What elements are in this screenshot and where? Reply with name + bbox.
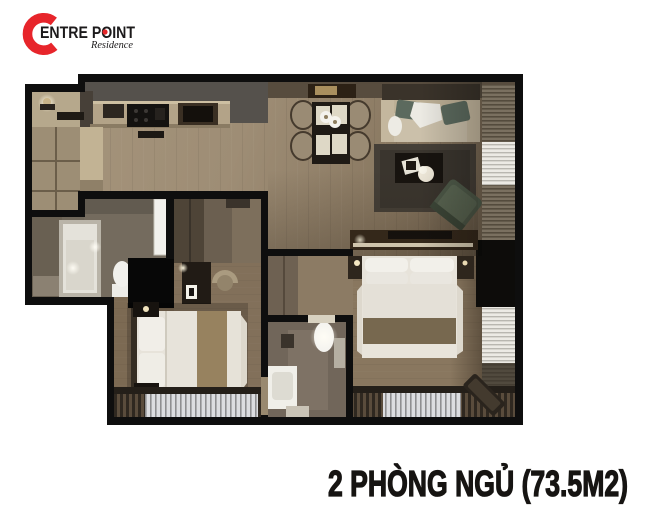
svg-text:Residence: Residence (90, 39, 133, 51)
svg-text:2 PHÒNG NGỦ (73.5M2): 2 PHÒNG NGỦ (73.5M2) (328, 462, 628, 504)
